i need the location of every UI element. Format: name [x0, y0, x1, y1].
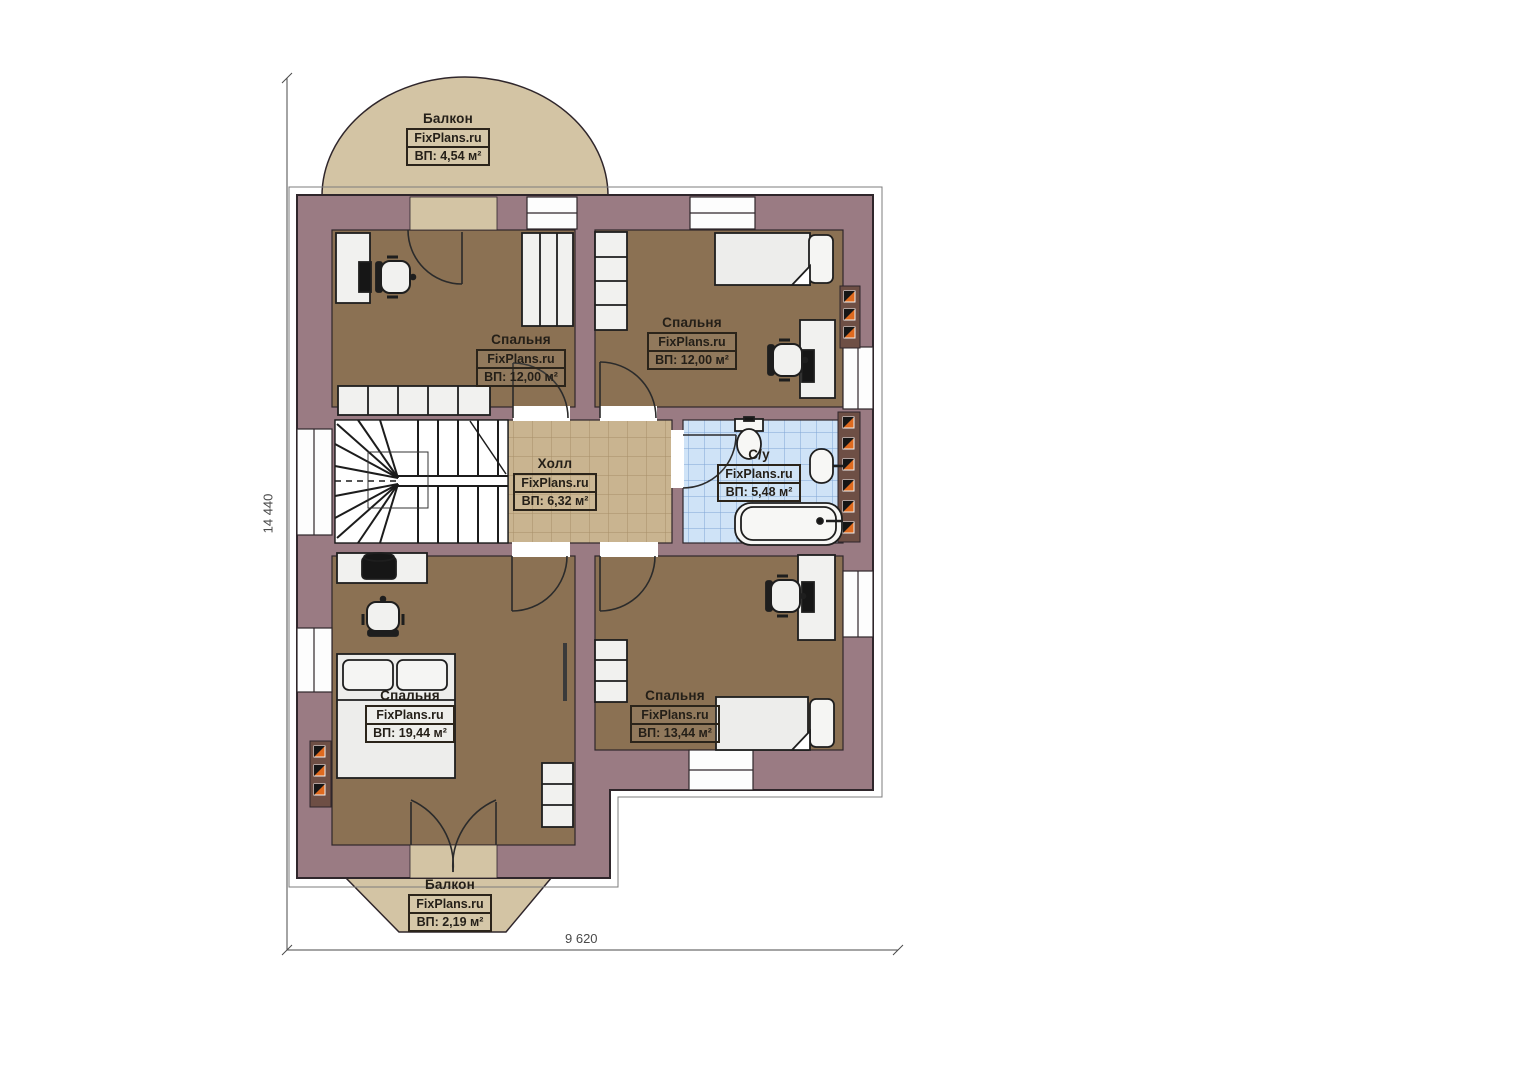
- room-label-bathroom: С/у FixPlans.ru ВП: 5,48 м²: [704, 447, 814, 502]
- room-label-balcony-bottom: Балкон FixPlans.ru ВП: 2,19 м²: [395, 877, 505, 932]
- room-name: Спальня: [466, 332, 576, 347]
- watermark-text: FixPlans.ru: [649, 334, 735, 350]
- window: [690, 197, 755, 229]
- room-label-bedroom-bottom-left: Спальня FixPlans.ru ВП: 19,44 м²: [355, 688, 465, 743]
- room-label-bedroom-top-left: Спальня FixPlans.ru ВП: 12,00 м²: [466, 332, 576, 387]
- room-info-box: FixPlans.ru ВП: 12,00 м²: [476, 349, 566, 387]
- room-name: Спальня: [355, 688, 465, 703]
- pillow: [397, 660, 447, 690]
- watermark-text: FixPlans.ru: [515, 475, 594, 491]
- window: [689, 750, 753, 790]
- watermark-text: FixPlans.ru: [478, 351, 564, 367]
- bathtub: [735, 503, 843, 545]
- floor-plan-canvas: Балкон FixPlans.ru ВП: 4,54 м² Спальня F…: [0, 0, 1528, 1080]
- floor-plan-drawing: [0, 0, 1528, 1080]
- bed: [715, 233, 810, 285]
- shelf: [338, 386, 490, 415]
- room-area: ВП: 2,19 м²: [410, 912, 489, 930]
- room-info-box: FixPlans.ru ВП: 19,44 м²: [365, 705, 455, 743]
- room-info-box: FixPlans.ru ВП: 4,54 м²: [406, 128, 489, 166]
- room-area: ВП: 5,48 м²: [719, 482, 798, 500]
- room-area: ВП: 6,32 м²: [515, 491, 594, 509]
- room-area: ВП: 12,00 м²: [649, 350, 735, 368]
- room-area: ВП: 19,44 м²: [367, 723, 453, 741]
- room-label-hall: Холл FixPlans.ru ВП: 6,32 м²: [500, 456, 610, 511]
- room-area: ВП: 4,54 м²: [408, 146, 487, 164]
- room-name: С/у: [704, 447, 814, 462]
- open-door-leaf: [563, 643, 567, 701]
- room-name: Балкон: [395, 877, 505, 892]
- wardrobe: [542, 763, 573, 827]
- pillow: [809, 235, 833, 283]
- room-info-box: FixPlans.ru ВП: 6,32 м²: [513, 473, 596, 511]
- room-label-balcony-top: Балкон FixPlans.ru ВП: 4,54 м²: [393, 111, 503, 166]
- watermark-text: FixPlans.ru: [410, 896, 489, 912]
- room-area: ВП: 13,44 м²: [632, 723, 718, 741]
- room-name: Спальня: [637, 315, 747, 330]
- room-label-bedroom-bottom-right: Спальня FixPlans.ru ВП: 13,44 м²: [620, 688, 730, 743]
- dimension-width-label: 9 620: [565, 931, 598, 946]
- watermark-text: FixPlans.ru: [632, 707, 718, 723]
- room-info-box: FixPlans.ru ВП: 13,44 м²: [630, 705, 720, 743]
- room-name: Балкон: [393, 111, 503, 126]
- dimension-height-label: 14 440: [260, 494, 275, 534]
- room-info-box: FixPlans.ru ВП: 2,19 м²: [408, 894, 491, 932]
- room-info-box: FixPlans.ru ВП: 5,48 м²: [717, 464, 800, 502]
- room-label-bedroom-top-right: Спальня FixPlans.ru ВП: 12,00 м²: [637, 315, 747, 370]
- monitor: [359, 262, 371, 292]
- watermark-text: FixPlans.ru: [367, 707, 453, 723]
- room-name: Холл: [500, 456, 610, 471]
- window: [297, 628, 332, 692]
- wardrobe: [522, 233, 573, 326]
- monitor: [802, 350, 814, 382]
- stairs: [335, 420, 508, 543]
- window: [843, 571, 873, 637]
- pillow: [810, 699, 834, 747]
- window: [843, 347, 873, 409]
- watermark-text: FixPlans.ru: [719, 466, 798, 482]
- window: [527, 197, 577, 229]
- window: [297, 429, 332, 535]
- pillow: [343, 660, 393, 690]
- room-info-box: FixPlans.ru ВП: 12,00 м²: [647, 332, 737, 370]
- room-name: Спальня: [620, 688, 730, 703]
- watermark-text: FixPlans.ru: [408, 130, 487, 146]
- room-area: ВП: 12,00 м²: [478, 367, 564, 385]
